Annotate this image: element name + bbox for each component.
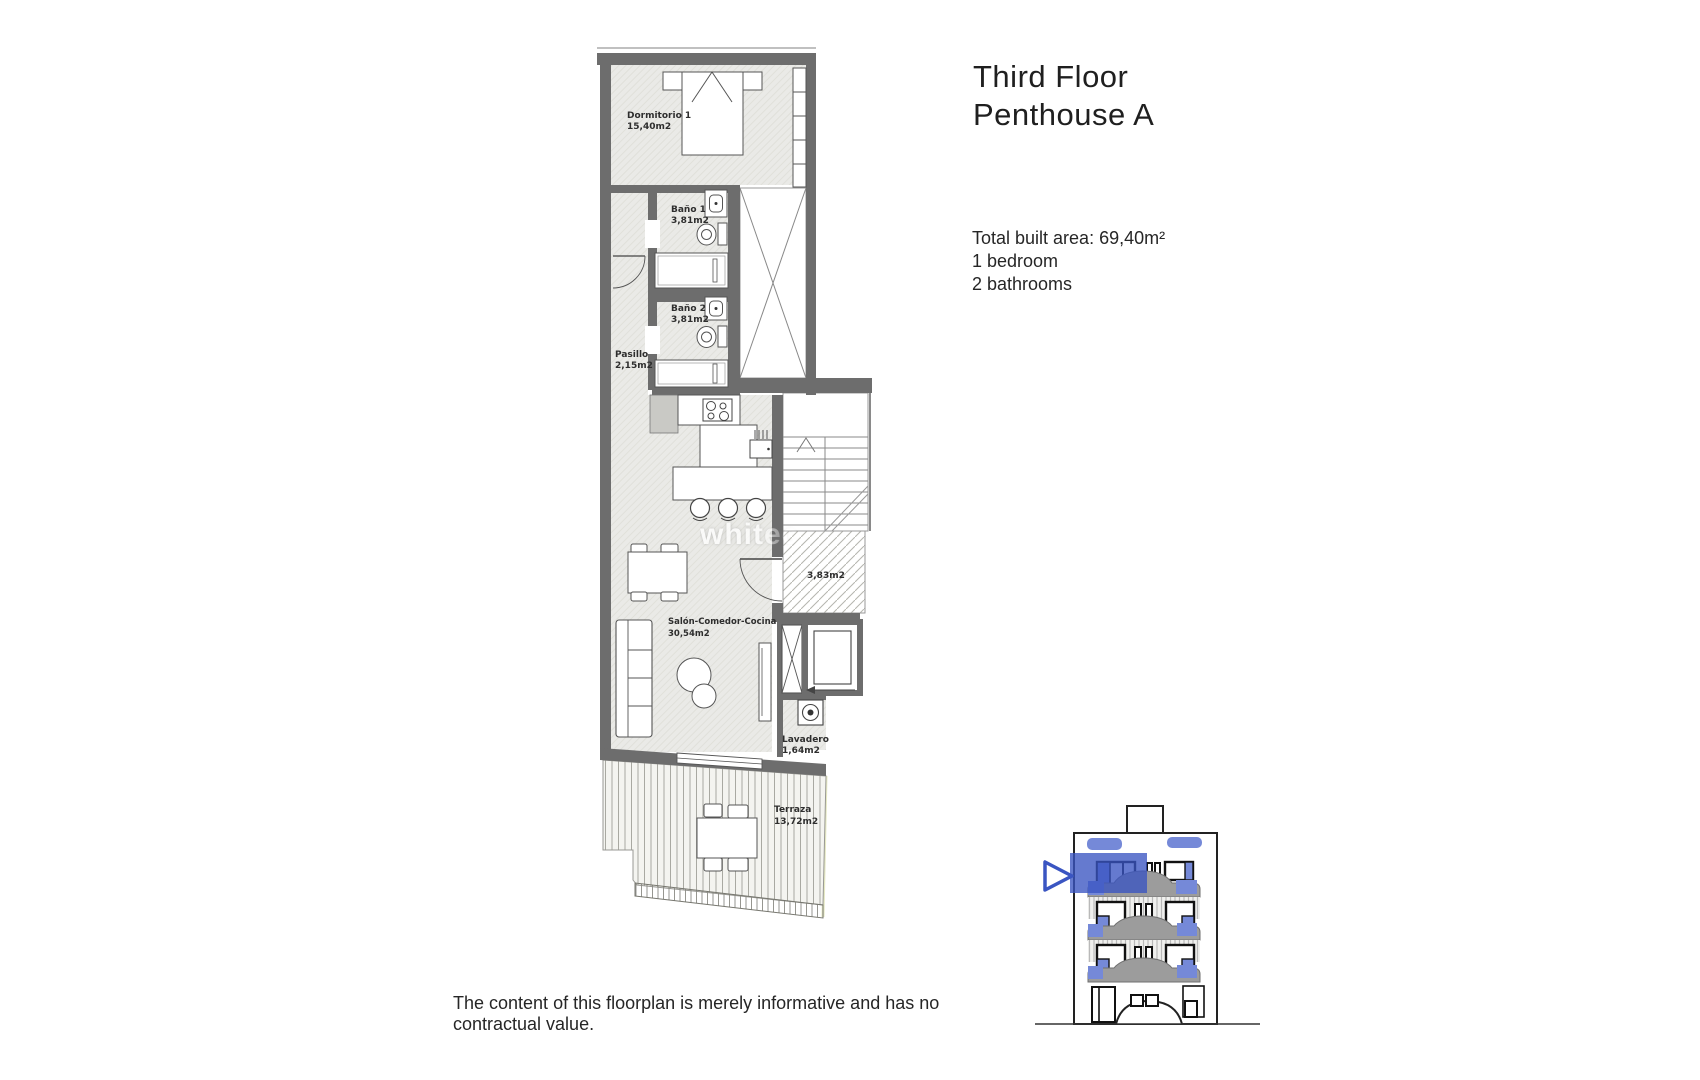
stairwell-void bbox=[740, 188, 806, 378]
open-area-label: 3,83m2 bbox=[807, 571, 845, 581]
living-label-area: 30,54m2 bbox=[668, 629, 710, 639]
bathroom1-label-area: 3,81m2 bbox=[671, 216, 709, 226]
watermark: whitec bbox=[700, 518, 799, 552]
elevator bbox=[782, 622, 860, 694]
bathroom2-label-name: Baño 2 bbox=[671, 304, 706, 314]
kitchen-counter-corner bbox=[650, 395, 678, 433]
terrace-label-name: Terraza bbox=[774, 805, 811, 815]
terrace-label-area: 13,72m2 bbox=[774, 817, 818, 827]
bathroom1-door-gap bbox=[645, 220, 660, 248]
terrace-chair bbox=[728, 858, 748, 871]
property-details: Total built area: 69,40m² 1 bedroom 2 ba… bbox=[972, 227, 1165, 296]
dining-table bbox=[628, 544, 687, 601]
coffee-table bbox=[692, 684, 716, 708]
floorplan-page: Terraza 13,72m2 3,83m2 bbox=[0, 0, 1700, 1080]
elevation-window bbox=[1131, 995, 1143, 1006]
bedrooms-text: 1 bedroom bbox=[972, 250, 1165, 273]
kitchen-island-bar bbox=[673, 467, 772, 500]
building-elevation bbox=[1030, 795, 1270, 1040]
dining-chair bbox=[661, 592, 678, 601]
disclaimer-text: The content of this floorplan is merely … bbox=[453, 993, 943, 1035]
elevation-top-glass bbox=[1167, 837, 1202, 848]
elevation-balcony-glass bbox=[1088, 966, 1103, 979]
wardrobe bbox=[793, 68, 806, 187]
elevation-roof-box bbox=[1127, 806, 1163, 833]
kitchen-island-upper bbox=[700, 425, 757, 467]
elevation-window bbox=[1135, 904, 1141, 917]
laundry-label-area: 1,64m2 bbox=[782, 746, 820, 756]
toilet bbox=[697, 326, 727, 348]
terrace-chair bbox=[728, 805, 748, 818]
bathroom1-label-name: Baño 1 bbox=[671, 205, 706, 215]
staircase bbox=[783, 382, 870, 531]
terrace-chair bbox=[704, 858, 722, 871]
cooktop bbox=[703, 399, 732, 421]
elevator-shaft bbox=[782, 625, 802, 693]
elevation-door bbox=[1185, 1001, 1197, 1017]
elevation-top-glass bbox=[1087, 838, 1122, 850]
laundry-label-name: Lavadero bbox=[782, 735, 829, 745]
bathrooms-text: 2 bathrooms bbox=[972, 273, 1165, 296]
shower bbox=[655, 360, 728, 387]
toilet bbox=[697, 223, 727, 245]
elevation-middle-floor bbox=[1088, 897, 1200, 940]
elevation-balcony-glass bbox=[1177, 923, 1197, 936]
nightstand bbox=[663, 72, 682, 90]
tv-unit bbox=[759, 643, 771, 721]
page-title-line1: Third Floor bbox=[973, 58, 1154, 96]
nightstand bbox=[743, 72, 762, 90]
sofa bbox=[616, 620, 652, 737]
elevation-door bbox=[1092, 987, 1115, 1022]
page-title-line2: Penthouse A bbox=[973, 96, 1154, 134]
sink bbox=[705, 190, 727, 217]
bedroom-label-name: Dormitorio 1 bbox=[627, 111, 691, 121]
floor-plan: Terraza 13,72m2 3,83m2 bbox=[585, 42, 880, 927]
elevation-window bbox=[1146, 995, 1158, 1006]
living-label-name: Salón-Comedor-Cocina bbox=[668, 616, 777, 627]
bedroom-label-area: 15,40m2 bbox=[627, 122, 671, 132]
page-title: Third Floor Penthouse A bbox=[973, 58, 1154, 134]
elevator-car bbox=[805, 622, 860, 694]
built-area-text: Total built area: 69,40m² bbox=[972, 227, 1165, 250]
elevation-balcony-glass bbox=[1088, 924, 1103, 937]
elevation-window bbox=[1146, 904, 1152, 917]
elevation-balcony-glass bbox=[1177, 965, 1197, 978]
washing-machine bbox=[798, 700, 823, 725]
terrace: Terraza 13,72m2 bbox=[603, 760, 826, 918]
hallway-label-name: Pasillo bbox=[615, 350, 648, 360]
elevation-floor-highlight bbox=[1070, 853, 1147, 893]
location-pointer-icon bbox=[1045, 862, 1072, 890]
hallway-label-area: 2,15m2 bbox=[615, 361, 653, 371]
shower bbox=[655, 253, 728, 288]
dining-chair bbox=[631, 592, 647, 601]
bathroom2-label-area: 3,81m2 bbox=[671, 315, 709, 325]
terrace-chair bbox=[704, 804, 722, 817]
elevation-lower-floor bbox=[1088, 940, 1200, 982]
elevation-balcony-glass bbox=[1176, 880, 1197, 894]
